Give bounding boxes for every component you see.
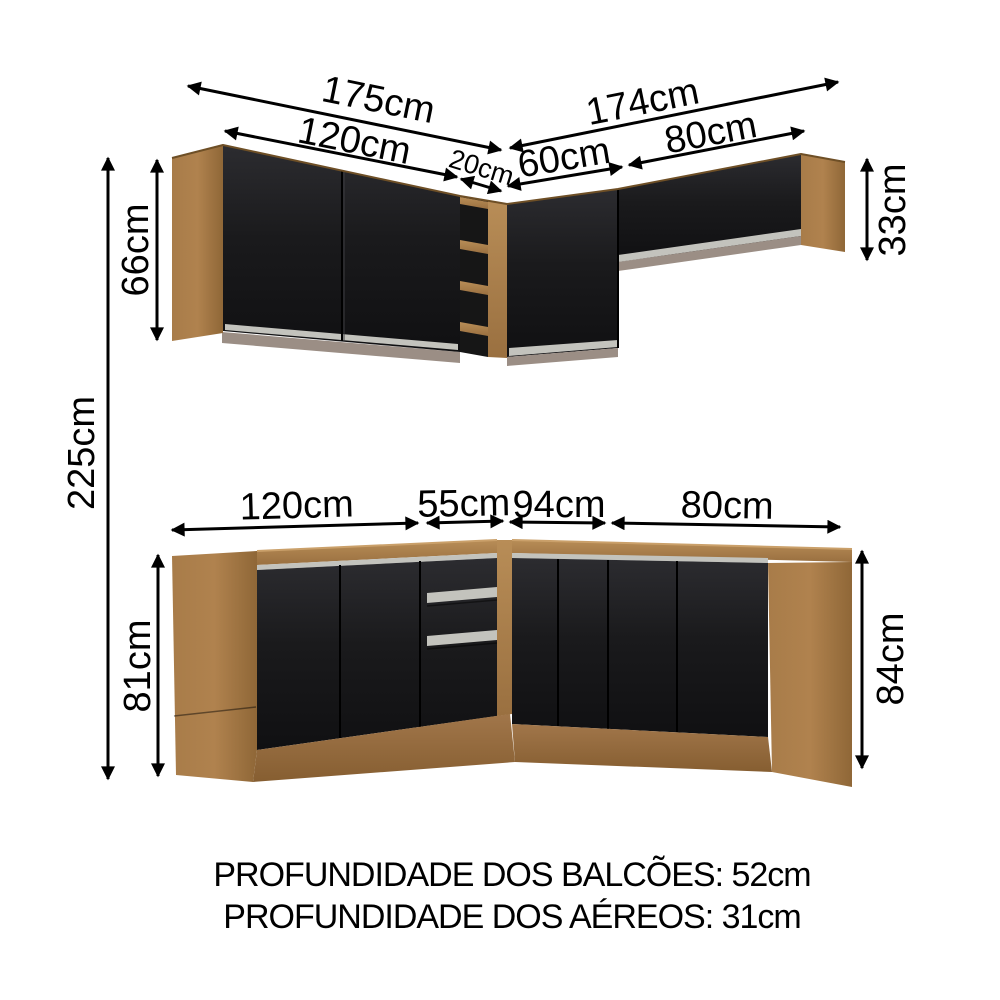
lower-right-side-panel	[768, 562, 852, 787]
upper-corner-post	[488, 201, 507, 358]
dimension-label-lower-right-doors: 80cm	[680, 484, 774, 528]
depth-notes: PROFUNDIDADE DOS BALCÕES: 52cm PROFUNDID…	[213, 856, 810, 936]
dimension-label-overall-height: 225cm	[61, 396, 103, 510]
dimension-label-lower-left-doors: 120cm	[239, 483, 354, 528]
upper-right-side-panel	[801, 154, 845, 252]
dimension-label-lower-corner-right: 94cm	[513, 484, 606, 526]
lower-cabinets-illustration	[172, 540, 852, 787]
upper-left-door-gap	[342, 170, 344, 341]
dimension-label-lower-left-height: 81cm	[117, 620, 159, 713]
dimension-label-upper-right-height: 33cm	[872, 164, 914, 257]
upper-corner-door-60	[507, 189, 618, 357]
lower-corner-post	[497, 540, 512, 716]
dimension-label-upper-left-height: 66cm	[115, 204, 157, 297]
product-dimensions-page: 175cm 120cm 20cm 174cm 60cm 80cm 66cm 33…	[0, 0, 1000, 1000]
upper-left-side-panel	[172, 145, 223, 341]
lower-right-doors	[512, 558, 768, 737]
depth-note-counters: PROFUNDIDADE DOS BALCÕES: 52cm	[213, 856, 810, 894]
dimension-label-lower-corner-left: 55cm	[417, 482, 511, 526]
kitchen-dimensions-diagram: 175cm 120cm 20cm 174cm 60cm 80cm 66cm 33…	[0, 0, 1000, 1000]
depth-note-wall-cabinets: PROFUNDIDADE DOS AÉREOS: 31cm	[223, 898, 800, 936]
dimension-label-upper-corner-door: 60cm	[515, 130, 614, 187]
dimension-label-lower-right-height: 84cm	[870, 613, 912, 706]
lower-left-side-panel	[172, 551, 257, 782]
